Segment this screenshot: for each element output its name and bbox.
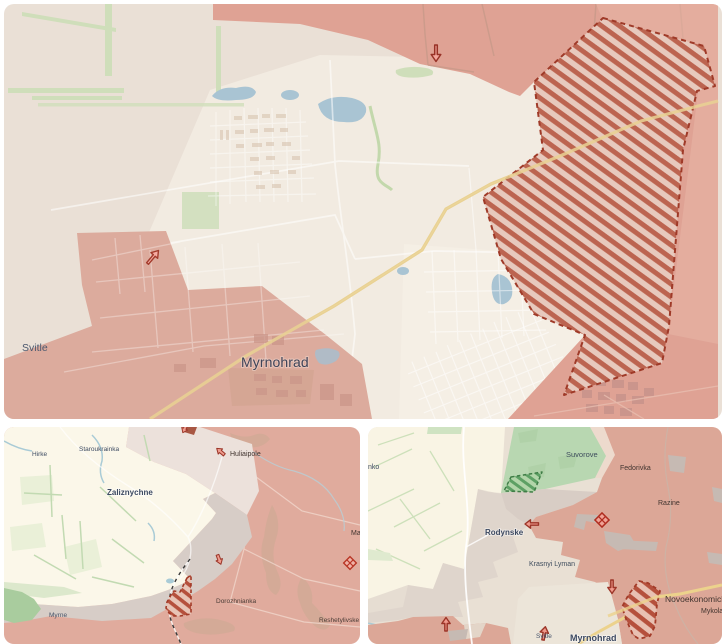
svg-text:Rodynske: Rodynske <box>485 528 524 537</box>
svg-text:Zaliznychne: Zaliznychne <box>107 488 153 497</box>
svg-text:Svitle: Svitle <box>22 342 48 354</box>
svg-text:Myrnohrad: Myrnohrad <box>241 354 309 370</box>
svg-text:Suvorove: Suvorove <box>566 450 598 459</box>
svg-text:Myrne: Myrne <box>49 612 67 619</box>
svg-text:Staroukrainka: Staroukrainka <box>79 446 119 453</box>
svg-text:Svitle: Svitle <box>536 633 552 640</box>
svg-text:Reshetylivske: Reshetylivske <box>319 617 359 624</box>
svg-text:Razine: Razine <box>658 500 680 507</box>
svg-text:Fedorivka: Fedorivka <box>620 465 651 472</box>
svg-text:nko: nko <box>368 464 379 471</box>
svg-text:Mykola: Mykola <box>701 608 722 615</box>
svg-text:Hirke: Hirke <box>32 451 48 458</box>
svg-text:Ma: Ma <box>351 530 360 537</box>
svg-text:Krasnyi Lyman: Krasnyi Lyman <box>529 561 575 568</box>
svg-text:Myrnohrad: Myrnohrad <box>570 633 617 643</box>
svg-text:Novoekonomich: Novoekonomich <box>665 594 722 604</box>
svg-text:Huliaipole: Huliaipole <box>230 451 261 458</box>
svg-text:Dorozhnianka: Dorozhnianka <box>216 598 256 605</box>
